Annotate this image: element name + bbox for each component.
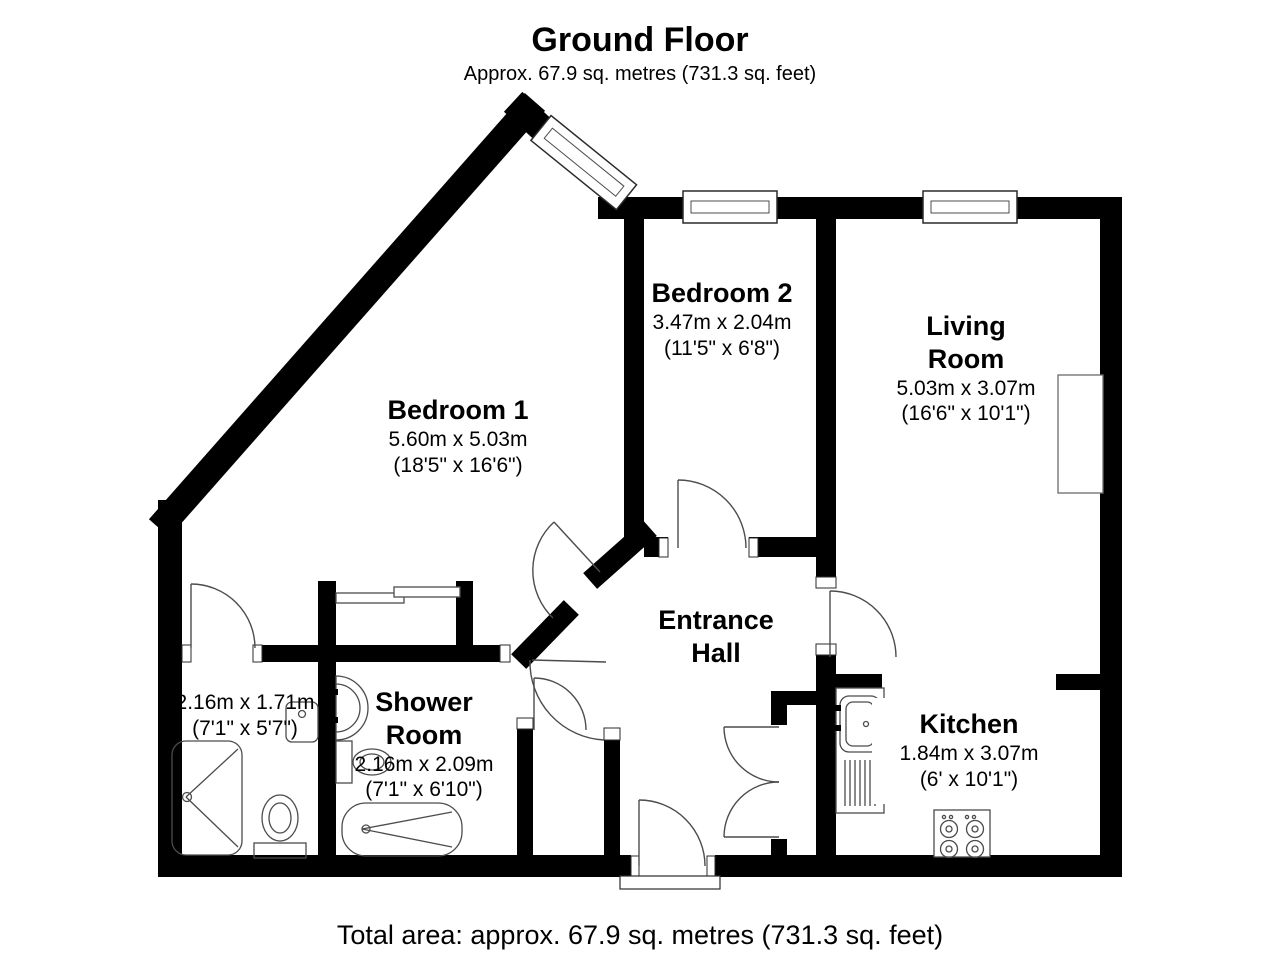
- room-label-entrance-hall: Entrance Hall: [626, 604, 806, 670]
- shower-tray: [172, 741, 242, 855]
- total-area-text: Total area: approx. 67.9 sq. metres (731…: [0, 920, 1280, 951]
- living-room-unit: [1058, 375, 1103, 493]
- room-dim-metric: 5.03m x 3.07m: [886, 376, 1046, 402]
- room-label-kitchen: Kitchen 1.84m x 3.07m (6' x 10'1"): [872, 698, 1066, 804]
- room-dim-metric: 3.47m x 2.04m: [612, 310, 832, 336]
- room-dim-metric: 5.60m x 5.03m: [348, 427, 568, 453]
- room-dim-imperial: (11'5" x 6'8"): [612, 336, 832, 362]
- room-name: Bedroom 1: [348, 394, 568, 427]
- door-living-room: [830, 591, 896, 657]
- toilet-ensuite: [254, 795, 306, 858]
- room-dim-imperial: (6' x 10'1"): [894, 767, 1044, 793]
- room-label-ensuite: 2.16m x 1.71m (7'1" x 5'7"): [160, 690, 330, 741]
- kitchen-hob: [934, 810, 990, 858]
- door-hall-cupboard: [724, 727, 779, 837]
- room-dim-metric: 2.16m x 1.71m: [160, 690, 330, 716]
- window-living-room: [923, 191, 1017, 223]
- front-door-threshold: [620, 876, 720, 889]
- door-inner-hall: [530, 660, 606, 740]
- room-name: Living Room: [886, 310, 1046, 376]
- room-dim-imperial: (7'1" x 6'10"): [344, 777, 504, 803]
- room-dim-metric: 1.84m x 3.07m: [894, 741, 1044, 767]
- door-bedroom2: [678, 480, 746, 548]
- wardrobe-bedroom1: [336, 587, 460, 603]
- room-dim-metric: 2.16m x 2.09m: [344, 752, 504, 778]
- room-label-living-room: Living Room 5.03m x 3.07m (16'6" x 10'1"…: [886, 310, 1046, 427]
- door-ensuite: [191, 584, 255, 648]
- room-label-shower-room: Shower Room 2.16m x 2.09m (7'1" x 6'10"): [344, 686, 504, 803]
- room-dim-imperial: (18'5" x 16'6"): [348, 453, 568, 479]
- window-bedroom1-diagonal: [531, 116, 637, 210]
- room-name: Shower Room: [344, 686, 504, 752]
- floorplan-drawing: [0, 0, 1280, 960]
- floorplan-page: Ground Floor Approx. 67.9 sq. metres (73…: [0, 0, 1280, 960]
- room-dim-imperial: (7'1" x 5'7"): [160, 716, 330, 742]
- door-front-entrance: [639, 800, 705, 866]
- room-label-bedroom1: Bedroom 1 5.60m x 5.03m (18'5" x 16'6"): [348, 394, 568, 478]
- room-dim-imperial: (16'6" x 10'1"): [886, 401, 1046, 427]
- room-name: Kitchen: [894, 708, 1044, 741]
- window-bedroom2: [683, 191, 777, 223]
- room-label-bedroom2: Bedroom 2 3.47m x 2.04m (11'5" x 6'8"): [612, 277, 832, 361]
- room-name: Bedroom 2: [612, 277, 832, 310]
- room-name: Entrance Hall: [626, 604, 806, 670]
- bathtub: [342, 803, 462, 856]
